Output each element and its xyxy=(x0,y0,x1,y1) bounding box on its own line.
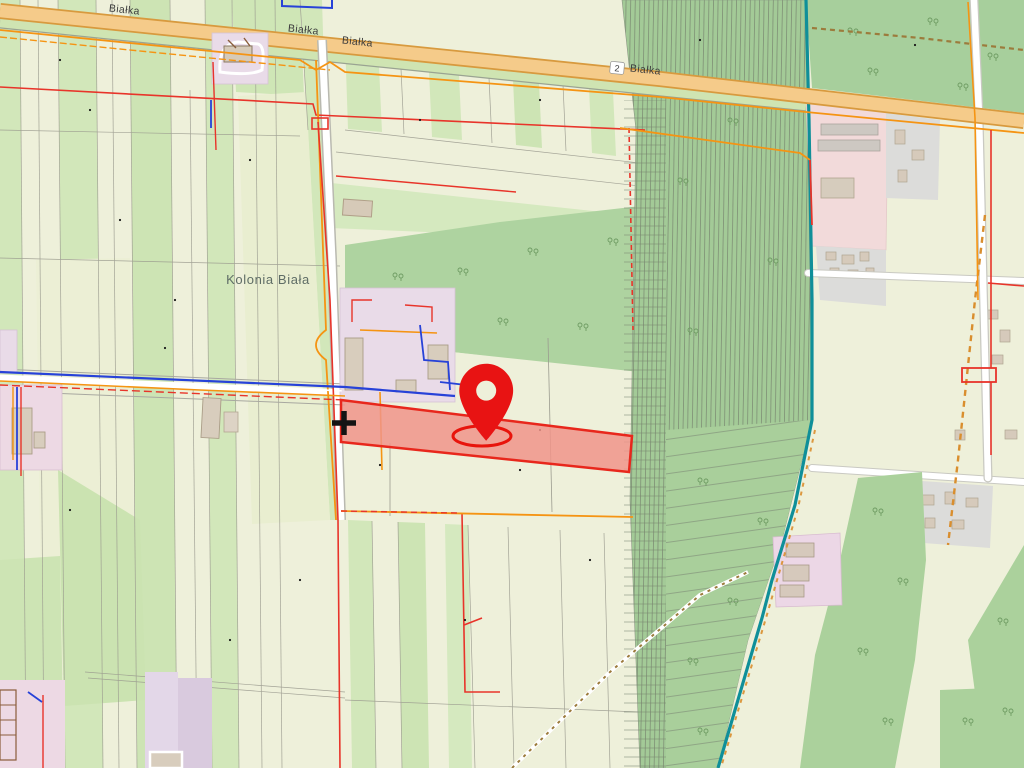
road-ref-number: 2 xyxy=(614,63,620,73)
map-viewport[interactable]: Białka Białka Białka 2 Białka Kolonia Bi… xyxy=(0,0,1024,768)
place-label-kolonia-biala: Kolonia Biała xyxy=(226,272,310,287)
road-ref-shield: 2 xyxy=(610,61,625,74)
map-canvas[interactable]: Białka Białka Białka 2 Białka Kolonia Bi… xyxy=(0,0,1024,768)
